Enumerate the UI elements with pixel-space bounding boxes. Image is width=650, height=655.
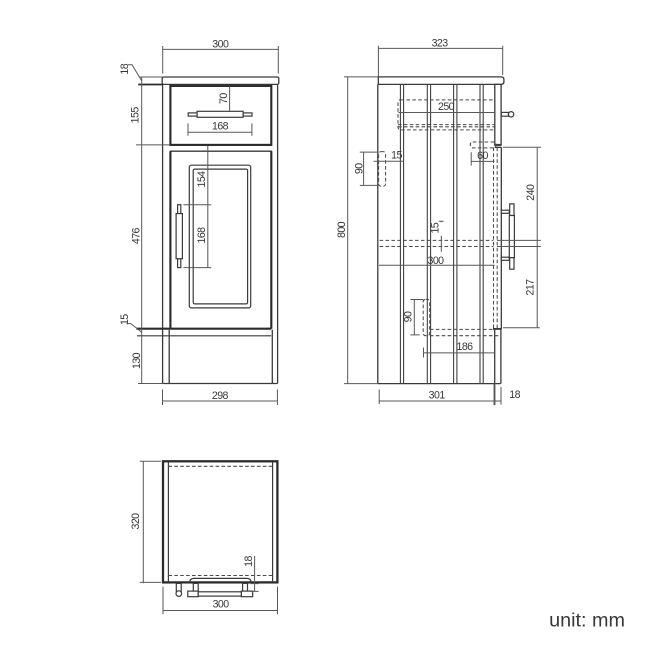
svg-text:15: 15 (119, 314, 131, 325)
svg-text:476: 476 (131, 227, 143, 244)
svg-text:240: 240 (525, 184, 537, 201)
svg-text:90: 90 (353, 163, 365, 174)
svg-text:70: 70 (218, 93, 230, 104)
svg-text:186: 186 (456, 341, 473, 353)
svg-text:323: 323 (432, 38, 449, 50)
svg-text:168: 168 (196, 227, 208, 244)
svg-text:18: 18 (243, 556, 255, 567)
svg-text:250: 250 (438, 101, 455, 113)
svg-text:18: 18 (119, 63, 131, 74)
svg-text:90: 90 (403, 311, 415, 322)
svg-text:300: 300 (427, 255, 444, 267)
svg-text:298: 298 (212, 390, 229, 402)
svg-text:300: 300 (212, 39, 229, 51)
svg-text:320: 320 (130, 513, 142, 530)
svg-text:301: 301 (429, 390, 446, 402)
svg-text:217: 217 (524, 279, 536, 296)
svg-text:300: 300 (213, 599, 230, 611)
svg-text:15: 15 (430, 222, 442, 233)
svg-text:130: 130 (131, 352, 143, 369)
svg-text:168: 168 (212, 121, 229, 133)
svg-text:unit: mm: unit: mm (549, 610, 625, 632)
svg-text:60: 60 (477, 150, 488, 162)
svg-text:155: 155 (129, 107, 141, 124)
svg-text:18: 18 (509, 389, 520, 401)
svg-text:15: 15 (391, 150, 402, 162)
svg-text:154: 154 (196, 171, 208, 188)
svg-text:800: 800 (336, 221, 348, 238)
